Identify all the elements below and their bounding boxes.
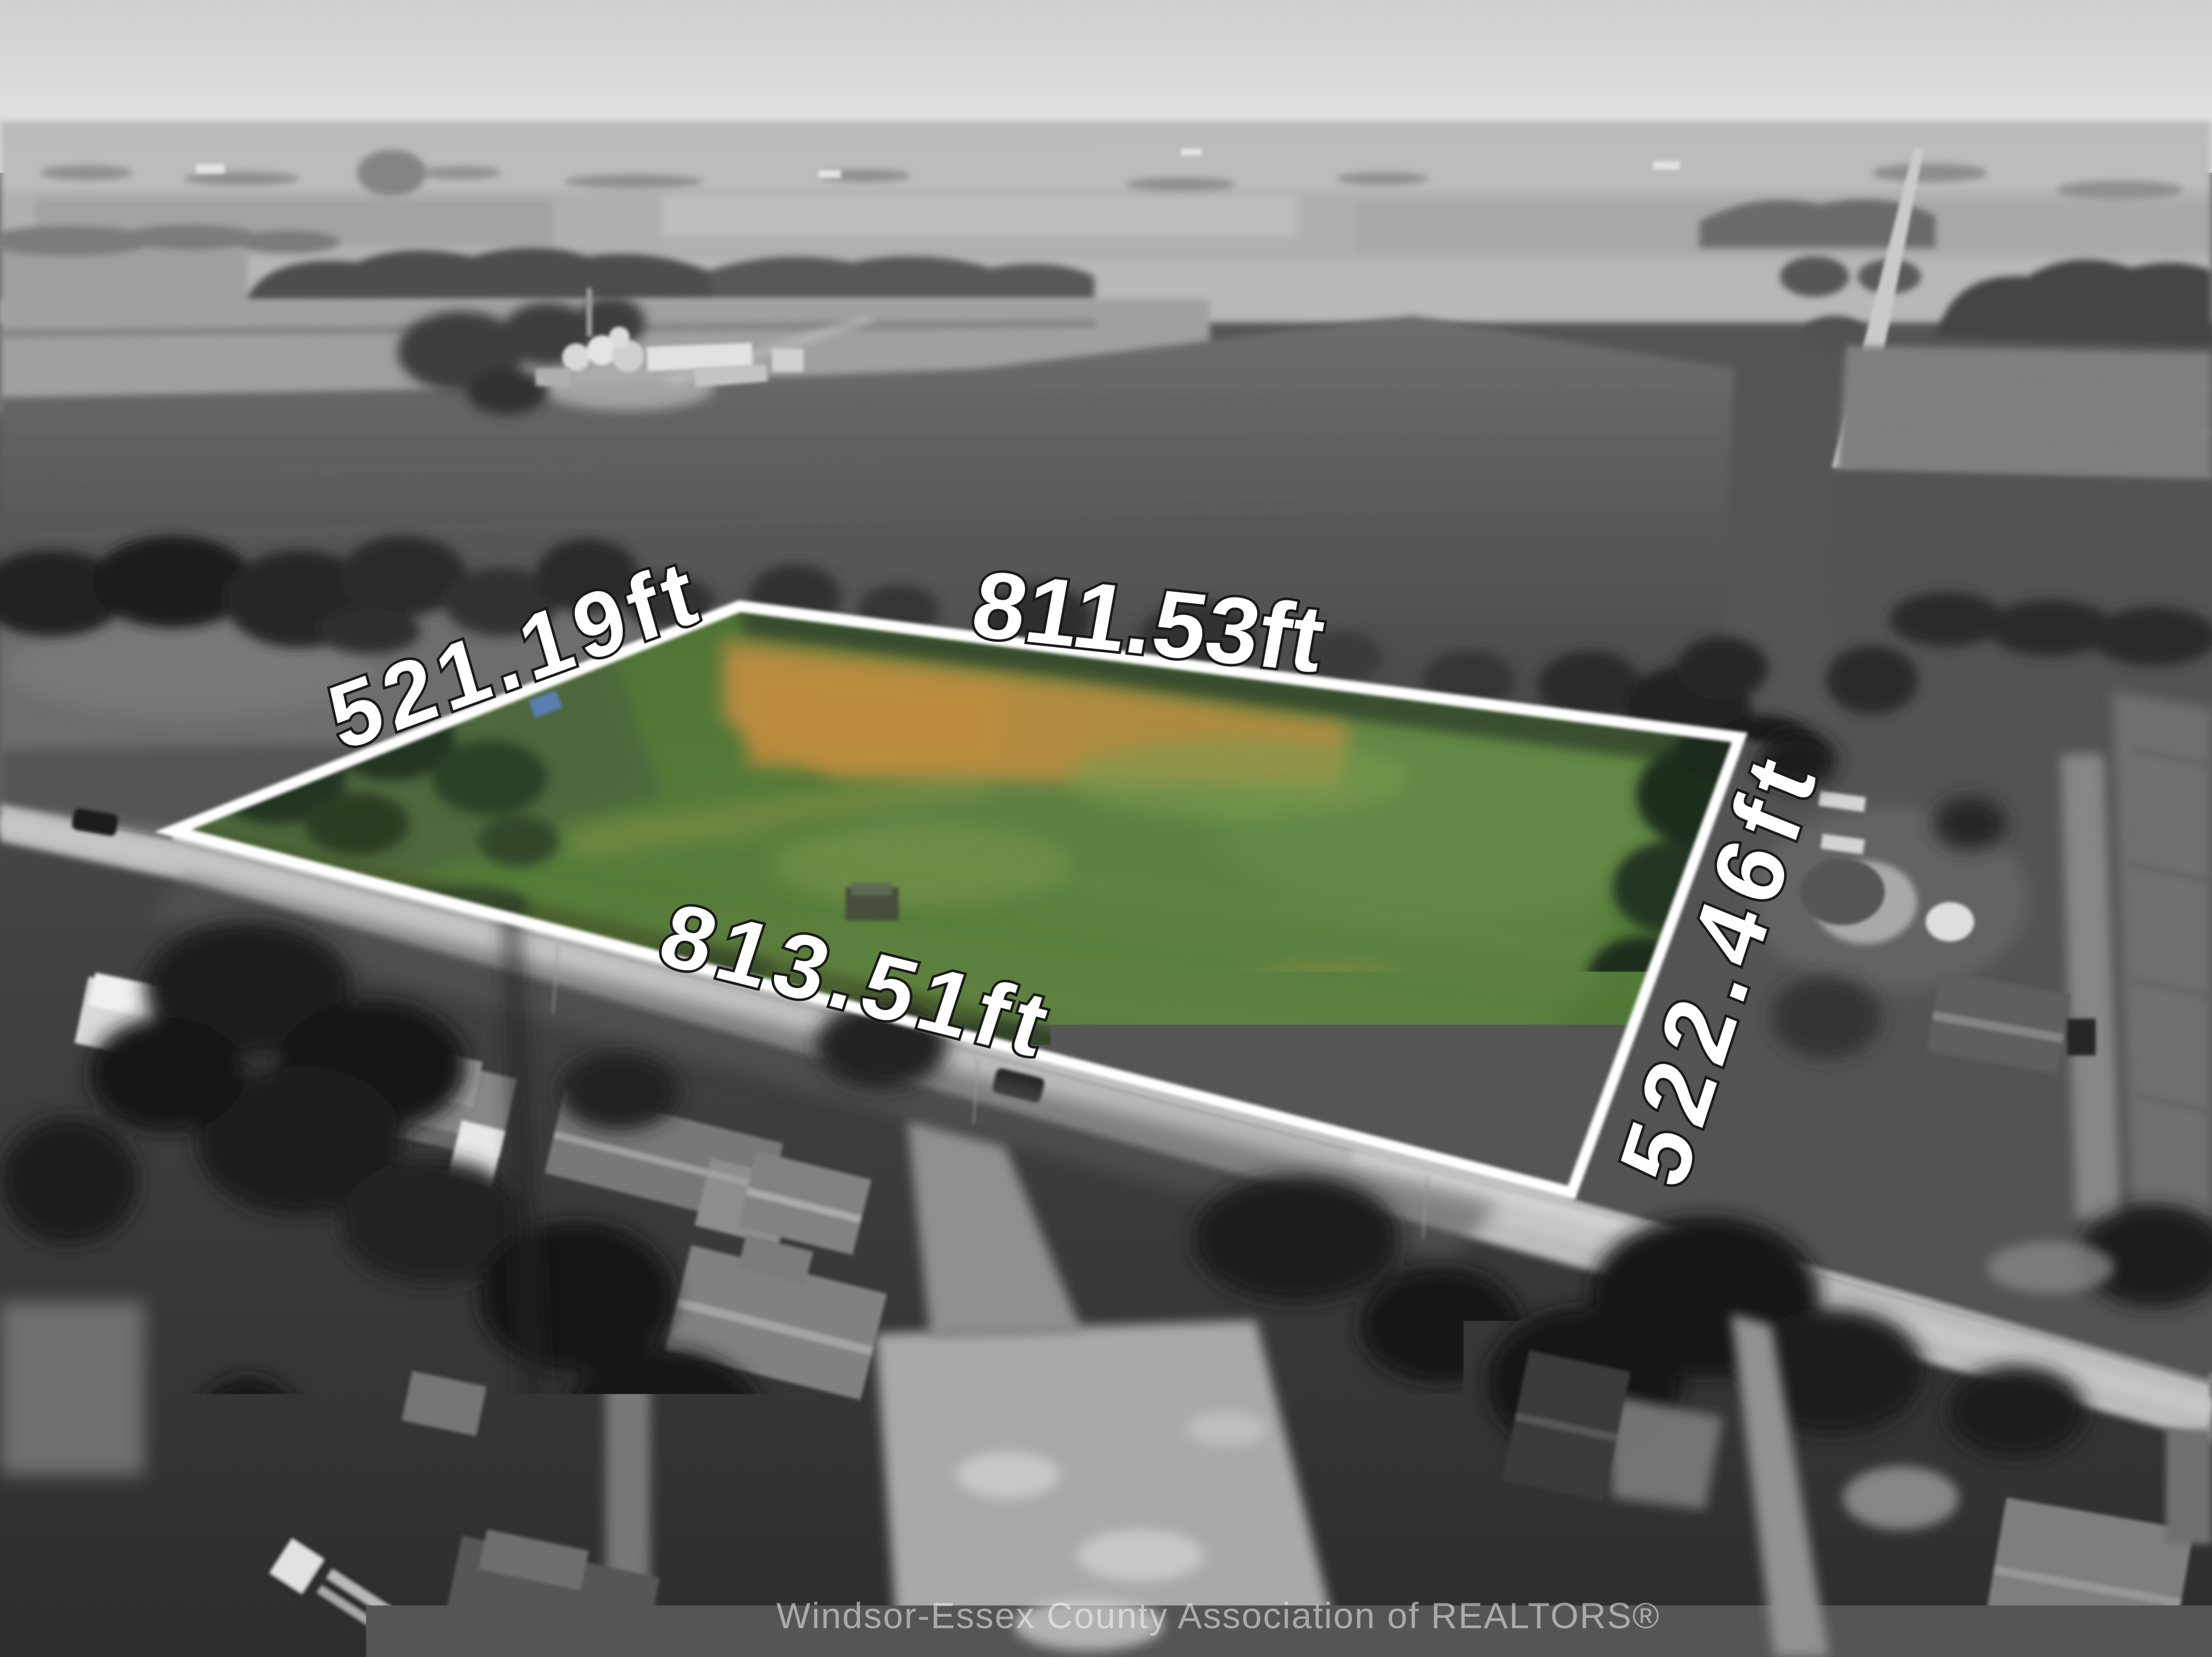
svg-text:Windsor-Essex County Associati: Windsor-Essex County Association of REAL… xyxy=(777,1596,1661,1636)
